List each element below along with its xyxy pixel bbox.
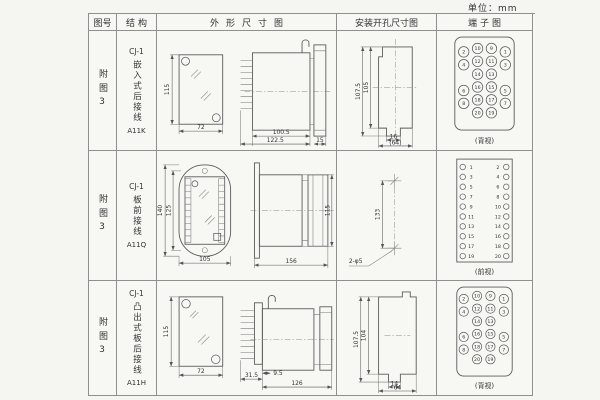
dim-side-height: 115: [324, 205, 331, 217]
dim-front-width: 105: [199, 256, 211, 263]
terminal-pin: 17: [486, 342, 495, 351]
terminal-pin: 8: [459, 345, 468, 354]
outline-drawing-cell: 115 72 100.5 122.5 15: [157, 31, 337, 151]
svg-text:13: 13: [487, 319, 493, 325]
terminal-pin: 20: [472, 108, 482, 118]
col-header-structure: 结构: [117, 14, 157, 31]
terminal-row: 1112: [460, 214, 509, 221]
terminal-diagram-row3: 2 10 9 1 4 12 11 3 14 13 6 16 15 5 8 18 …: [437, 281, 532, 395]
svg-text:11: 11: [468, 214, 474, 220]
col-header-fig: 图号: [89, 14, 117, 31]
dim-total-length: 126: [291, 380, 303, 387]
svg-text:12: 12: [474, 306, 480, 312]
svg-text:5: 5: [502, 335, 505, 341]
view-label: (背视): [475, 381, 495, 390]
svg-text:16: 16: [495, 234, 501, 240]
svg-text:18: 18: [474, 344, 480, 350]
dim-side-length: 156: [285, 258, 297, 265]
svg-text:19: 19: [488, 111, 494, 117]
svg-text:3: 3: [470, 175, 473, 181]
terminal-row: 1314: [460, 224, 509, 231]
svg-text:6: 6: [462, 335, 465, 341]
col-header-outline: 外形尺寸图: [157, 14, 337, 31]
mounting-drawing-row2: 133 2-φ5: [337, 151, 436, 280]
svg-text:17: 17: [488, 98, 494, 104]
svg-text:11: 11: [487, 306, 493, 312]
terminal-pin: 16: [472, 329, 481, 338]
structure-name: 凸出式板后接线: [131, 302, 143, 376]
model-label: CJ-1: [129, 182, 144, 191]
terminal-pin: 7: [499, 345, 508, 354]
svg-text:4: 4: [462, 309, 465, 315]
svg-text:4: 4: [496, 175, 499, 181]
terminal-pin: 5: [500, 85, 510, 95]
front-view: 115 72: [163, 297, 223, 378]
type-code: A11Q: [127, 241, 146, 249]
terminal-row: 34: [460, 174, 509, 181]
terminal-pin: 18: [472, 342, 481, 351]
dim-offset1: 31.5: [245, 372, 258, 379]
svg-text:1: 1: [470, 165, 473, 171]
outline-drawing-cell: 140 125 105 156 115: [157, 151, 337, 281]
terminal-pin: 12: [472, 304, 481, 313]
side-view: 156 115: [250, 163, 333, 268]
svg-text:19: 19: [487, 357, 493, 363]
terminal-row: 1920: [460, 253, 509, 260]
dimension-table: 图号 结构 外形尺寸图 安装开孔尺寸图 端子图 附图3 CJ-1 嵌入式后接线 …: [88, 13, 535, 396]
terminal-pin: 4: [458, 60, 468, 70]
terminal-pin: 15: [486, 82, 496, 92]
type-code: A11K: [127, 127, 145, 135]
model-label: CJ-1: [129, 47, 144, 56]
mounting-drawing-row1: 107.5 105 16 (64): [337, 31, 436, 150]
mounting-drawing-row3: 107.5 104 14 64: [337, 281, 436, 395]
front-view: 115 72: [164, 55, 223, 134]
svg-text:4: 4: [462, 63, 465, 69]
dim-front-inner-height: 125: [166, 205, 173, 217]
terminal-pin: 15: [486, 329, 495, 338]
terminal-pin: 3: [500, 60, 510, 70]
fig-number-cell: 附图3: [89, 31, 117, 151]
outline-drawing-cell: 115 72 31.5 9.5: [157, 281, 337, 396]
terminal-pin: 1: [500, 47, 510, 57]
terminal-pin: 6: [459, 332, 468, 341]
svg-text:2: 2: [462, 297, 465, 303]
svg-text:19: 19: [468, 254, 474, 260]
outline-drawing-row2: 140 125 105 156 115: [157, 151, 336, 280]
svg-text:9: 9: [489, 294, 492, 300]
datasheet-page: 单位：mm 图号 结构 外形尺寸图 安装开孔尺寸图 端子图 附图3 CJ-1 嵌…: [0, 0, 600, 400]
terminal-row: 56: [460, 184, 509, 191]
terminal-pin: 8: [458, 98, 468, 108]
dim-hole-distance: 133: [375, 209, 382, 221]
dim-cutout-inner-height: 104: [361, 330, 368, 342]
structure-cell: CJ-1 板前接线 A11Q: [117, 151, 157, 281]
terminal-pin: 19: [486, 108, 496, 118]
svg-text:1: 1: [504, 50, 507, 56]
structure-cell: CJ-1 嵌入式后接线 A11K: [117, 31, 157, 151]
terminal-pin: 20: [472, 355, 481, 364]
terminal-pin: 10: [472, 43, 482, 53]
terminal-row: 78: [460, 194, 509, 201]
svg-text:18: 18: [475, 98, 481, 104]
dim-total-length: 122.5: [267, 137, 284, 144]
svg-text:15: 15: [488, 85, 494, 91]
svg-text:2: 2: [462, 50, 465, 56]
view-label: (前视): [475, 267, 495, 276]
terminal-pin: 6: [458, 85, 468, 95]
structure-name: 板前接线: [131, 195, 143, 237]
terminal-pin: 10: [472, 291, 481, 300]
terminal-pin: 7: [500, 98, 510, 108]
terminal-pin: 1: [499, 294, 508, 303]
col-header-terminal: 端子图: [437, 14, 533, 31]
svg-text:9: 9: [490, 46, 493, 52]
svg-text:14: 14: [495, 224, 501, 230]
terminal-row: 1718: [460, 243, 509, 250]
fig-number: 附图3: [96, 69, 109, 112]
fig-number: 附图3: [96, 194, 109, 237]
terminal-row: 1516: [460, 234, 509, 241]
svg-text:10: 10: [495, 204, 501, 210]
terminal-pin: 2: [459, 294, 468, 303]
svg-text:1: 1: [502, 297, 505, 303]
type-code: A11H: [127, 379, 146, 387]
svg-text:18: 18: [495, 244, 501, 250]
svg-text:16: 16: [475, 85, 481, 91]
dim-front-width: 72: [197, 124, 205, 131]
svg-text:13: 13: [468, 224, 474, 230]
dim-cutout-outer-height: 107.5: [355, 83, 362, 100]
side-view: 100.5 122.5 15: [241, 40, 332, 146]
dim-cutout-inner-height: 105: [363, 82, 370, 94]
terminal-pin: 13: [486, 317, 495, 326]
front-view: 140 125 105: [157, 165, 230, 266]
terminal-row: 12: [460, 164, 509, 171]
terminal-drawing-cell: 2 10 9 1 4 12 11 3 14 13 6 16 15 5 8 18 …: [437, 281, 533, 396]
terminal-pin: 11: [486, 304, 495, 313]
svg-text:8: 8: [462, 101, 465, 107]
terminal-pin: 14: [472, 317, 481, 326]
svg-text:15: 15: [468, 234, 474, 240]
outline-drawing-row1: 115 72 100.5 122.5 15: [157, 31, 336, 150]
svg-text:7: 7: [470, 194, 473, 200]
terminal-drawing-cell: 2 10 9 1 4 12 11 3 14 13 6 16 15 5 8 18 …: [437, 31, 533, 151]
dim-rear-length: 15: [316, 137, 324, 144]
mounting-drawing-cell: 133 2-φ5: [337, 151, 437, 281]
svg-text:20: 20: [495, 254, 501, 260]
dim-front-height: 140: [157, 205, 164, 217]
mounting-drawing-cell: 107.5 105 16 (64): [337, 31, 437, 151]
dim-overall-width: 64: [394, 384, 402, 391]
terminal-pin: 16: [472, 82, 482, 92]
svg-text:20: 20: [474, 357, 480, 363]
structure-cell: CJ-1 凸出式板后接线 A11H: [117, 281, 157, 396]
dim-front-height: 115: [164, 84, 171, 96]
hole-spec-label: 2-φ5: [349, 258, 363, 265]
svg-text:17: 17: [468, 244, 474, 250]
terminal-diagram-row1: 2 10 9 1 4 12 11 3 14 13 6 16 15 5 8 18 …: [437, 31, 532, 150]
svg-text:14: 14: [474, 319, 480, 325]
svg-text:17: 17: [487, 344, 493, 350]
terminal-pin: 14: [472, 69, 482, 79]
terminal-pin: 18: [472, 95, 482, 105]
fig-number-cell: 附图3: [89, 151, 117, 281]
dim-front-width: 72: [197, 368, 205, 375]
svg-text:3: 3: [504, 63, 507, 69]
fig-number: 附图3: [96, 317, 109, 360]
terminal-drawing-cell: 12 34 56 78 910 1112 1314 1516 1718 1920…: [437, 151, 533, 281]
dim-offset2: 9.5: [273, 370, 283, 377]
svg-text:7: 7: [502, 347, 505, 353]
svg-text:12: 12: [475, 59, 481, 65]
svg-text:14: 14: [475, 72, 481, 78]
terminal-pin: 4: [459, 307, 468, 316]
svg-text:16: 16: [474, 332, 480, 338]
svg-text:2: 2: [496, 165, 499, 171]
svg-text:5: 5: [470, 185, 473, 191]
svg-text:10: 10: [475, 46, 481, 52]
fig-number-cell: 附图3: [89, 281, 117, 396]
svg-text:8: 8: [496, 194, 499, 200]
terminal-pin: 9: [486, 43, 496, 53]
dim-front-height: 115: [163, 326, 170, 338]
svg-text:6: 6: [496, 185, 499, 191]
terminal-pin: 19: [486, 355, 495, 364]
model-label: CJ-1: [129, 289, 144, 298]
svg-text:3: 3: [502, 309, 505, 315]
view-label: (背视): [475, 136, 495, 145]
svg-text:9: 9: [470, 204, 473, 210]
terminal-pin: 11: [486, 56, 496, 66]
outline-drawing-row3: 115 72 31.5 9.5: [157, 281, 336, 395]
svg-text:7: 7: [504, 101, 507, 107]
svg-text:6: 6: [462, 88, 465, 94]
dim-overall-width: (64): [389, 139, 401, 146]
svg-text:20: 20: [475, 111, 481, 117]
col-header-mounting: 安装开孔尺寸图: [337, 14, 437, 31]
svg-text:12: 12: [495, 214, 501, 220]
terminal-pin: 5: [499, 332, 508, 341]
svg-text:5: 5: [504, 88, 507, 94]
svg-text:10: 10: [474, 294, 480, 300]
terminal-pin: 13: [486, 69, 496, 79]
svg-text:8: 8: [462, 347, 465, 353]
svg-text:15: 15: [487, 332, 493, 338]
terminal-pin: 3: [499, 307, 508, 316]
dim-body-length: 100.5: [273, 129, 290, 136]
side-view: 31.5 9.5 126: [241, 295, 334, 390]
terminal-row: 910: [460, 204, 509, 211]
terminal-pin: 17: [486, 95, 496, 105]
structure-name: 嵌入式后接线: [131, 60, 143, 123]
terminal-pin: 2: [458, 47, 468, 57]
terminal-pin: 12: [472, 56, 482, 66]
terminal-diagram-row2: 12 34 56 78 910 1112 1314 1516 1718 1920…: [437, 151, 532, 280]
mounting-drawing-cell: 107.5 104 14 64: [337, 281, 437, 396]
dim-cutout-outer-height: 107.5: [353, 331, 360, 348]
svg-text:11: 11: [488, 59, 494, 65]
svg-text:13: 13: [488, 72, 494, 78]
terminal-pin: 9: [486, 291, 495, 300]
